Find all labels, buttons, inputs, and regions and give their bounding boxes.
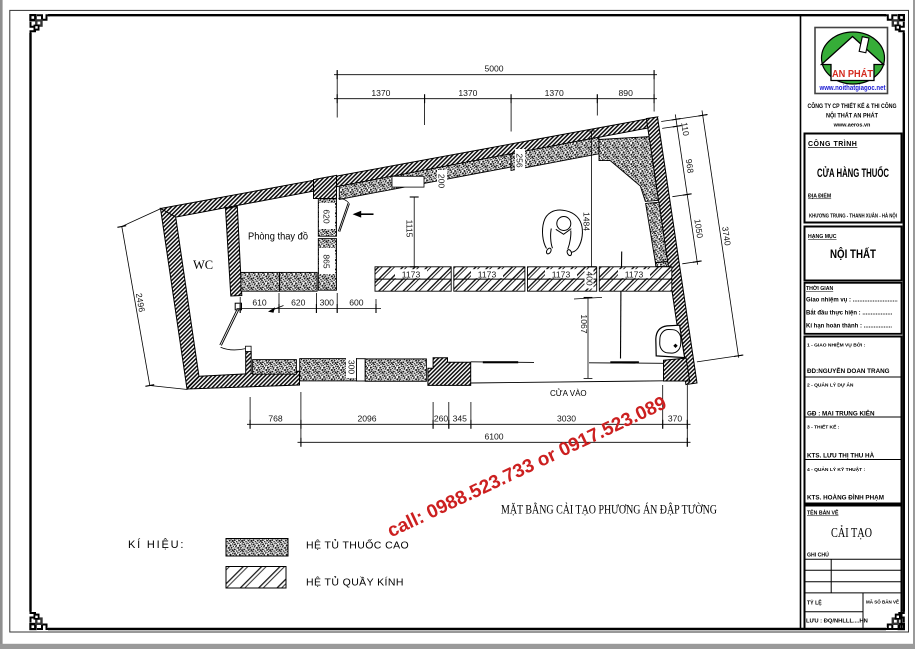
- svg-text:1173: 1173: [552, 270, 571, 280]
- svg-text:1115: 1115: [405, 220, 415, 238]
- svg-text:GĐ : MAI TRUNG KIÊN: GĐ : MAI TRUNG KIÊN: [807, 409, 875, 418]
- svg-text:KTS. LƯU THỊ THU HÀ: KTS. LƯU THỊ THU HÀ: [807, 451, 875, 460]
- svg-text:www.noithatgiagoc.net: www.noithatgiagoc.net: [819, 85, 886, 92]
- svg-text:Bắt đầu thực hiện : ..........: Bắt đầu thực hiện : ..................: [806, 310, 893, 317]
- svg-text:200: 200: [437, 174, 447, 189]
- svg-text:HẠNG MỤC: HẠNG MỤC: [808, 234, 837, 240]
- svg-text:600: 600: [349, 298, 364, 308]
- svg-text:110: 110: [679, 122, 691, 137]
- svg-text:NỘI THẤT: NỘI THẤT: [830, 248, 876, 261]
- svg-text:CẢI TẠO: CẢI TẠO: [831, 525, 872, 540]
- svg-text:370: 370: [668, 413, 683, 423]
- svg-text:2496: 2496: [134, 292, 147, 313]
- svg-text:CỬA HÀNG THUỐC: CỬA HÀNG THUỐC: [817, 166, 889, 180]
- svg-text:620: 620: [322, 209, 332, 224]
- svg-text:768: 768: [268, 413, 283, 423]
- svg-text:968: 968: [684, 158, 696, 174]
- svg-text:www.aeros.vn: www.aeros.vn: [833, 123, 871, 129]
- svg-text:MẶT BẰNG CẢI TẠO PHƯƠNG ÁN ĐẬ: MẶT BẰNG CẢI TẠO PHƯƠNG ÁN ĐẬP TƯỜNG: [501, 502, 717, 517]
- svg-text:NỘI THẤT AN PHÁT: NỘI THẤT AN PHÁT: [826, 110, 878, 120]
- svg-text:HỆ TỦ QUẦY KÍNH: HỆ TỦ QUẦY KÍNH: [306, 576, 404, 589]
- svg-text:1173: 1173: [402, 270, 421, 280]
- svg-text:TÊN BẢN VẼ: TÊN BẢN VẼ: [807, 509, 839, 517]
- svg-text:1050: 1050: [692, 218, 705, 239]
- svg-text:1484: 1484: [582, 212, 592, 231]
- svg-text:MÃ SỐ BẢN VẼ: MÃ SỐ BẢN VẼ: [866, 599, 900, 606]
- svg-text:890: 890: [619, 88, 634, 98]
- svg-text:1370: 1370: [458, 88, 477, 98]
- svg-text:LƯU : ĐQ/NHLLL....HN: LƯU : ĐQ/NHLLL....HN: [806, 619, 868, 625]
- svg-text:CÔNG TY CP THIẾT KẾ & THI CÔNG: CÔNG TY CP THIẾT KẾ & THI CÔNG: [808, 100, 897, 110]
- svg-text:Phòng thay đồ: Phòng thay đồ: [248, 231, 308, 243]
- svg-text:620: 620: [291, 298, 306, 308]
- svg-text:WC: WC: [193, 258, 213, 272]
- svg-text:KHƯƠNG TRUNG - THANH XUÂN - HÀ: KHƯƠNG TRUNG - THANH XUÂN - HÀ NỘI: [809, 212, 897, 220]
- svg-text:260: 260: [434, 413, 449, 423]
- svg-text:1 - GIAO NHIỆM VỤ BỞI :: 1 - GIAO NHIỆM VỤ BỞI :: [807, 341, 866, 349]
- svg-text:1173: 1173: [625, 270, 644, 280]
- svg-text:4 - QUẢN LÝ KỸ THUẬT :: 4 - QUẢN LÝ KỸ THUẬT :: [807, 466, 866, 473]
- svg-text:1067: 1067: [579, 314, 589, 333]
- svg-text:3030: 3030: [557, 413, 576, 423]
- svg-text:call: 0988.523.733 or 0917.523: call: 0988.523.733 or 0917.523.089: [384, 393, 670, 542]
- svg-text:6100: 6100: [484, 431, 503, 441]
- svg-text:TỶ LỆ: TỶ LỆ: [807, 599, 822, 607]
- svg-text:256: 256: [515, 153, 525, 168]
- svg-text:865: 865: [322, 254, 332, 269]
- svg-text:2096: 2096: [357, 413, 376, 423]
- svg-text:610: 610: [252, 298, 267, 308]
- svg-text:400: 400: [585, 271, 595, 286]
- svg-text:5000: 5000: [484, 64, 503, 74]
- svg-text:AN PHÁT: AN PHÁT: [832, 67, 874, 80]
- svg-text:THỜI GIAN: THỜI GIAN: [806, 284, 833, 292]
- svg-text:ĐỊA ĐIỂM: ĐỊA ĐIỂM: [808, 193, 831, 200]
- svg-text:HỆ TỦ THUỐC CAO: HỆ TỦ THUỐC CAO: [306, 538, 409, 552]
- svg-text:1370: 1370: [545, 88, 564, 98]
- svg-text:KÍ HIỆU:: KÍ HIỆU:: [128, 538, 185, 551]
- svg-text:3 - THIẾT KẾ :: 3 - THIẾT KẾ :: [807, 424, 840, 431]
- svg-text:2 - QUẢN LÝ DỰ ÁN: 2 - QUẢN LÝ DỰ ÁN: [807, 382, 854, 389]
- svg-text:300: 300: [320, 298, 335, 308]
- svg-text:KTS. HOÀNG ĐÌNH PHẠM: KTS. HOÀNG ĐÌNH PHẠM: [807, 493, 884, 502]
- svg-text:CÔNG TRÌNH: CÔNG TRÌNH: [808, 139, 857, 148]
- svg-text:Giao nhiệm vụ : ..............: Giao nhiệm vụ : ........................…: [806, 298, 898, 304]
- svg-text:ĐD:NGUYỄN DOAN TRANG: ĐD:NGUYỄN DOAN TRANG: [807, 366, 890, 375]
- svg-text:1173: 1173: [478, 270, 497, 280]
- svg-text:Kí hạn hoàn thành : ..........: Kí hạn hoàn thành : .................: [806, 324, 892, 330]
- svg-text:345: 345: [453, 413, 468, 423]
- svg-text:CỬA VÀO: CỬA VÀO: [550, 389, 587, 398]
- svg-text:300: 300: [346, 360, 356, 375]
- svg-text:GHI CHÚ: GHI CHÚ: [807, 552, 829, 559]
- svg-text:1370: 1370: [371, 88, 390, 98]
